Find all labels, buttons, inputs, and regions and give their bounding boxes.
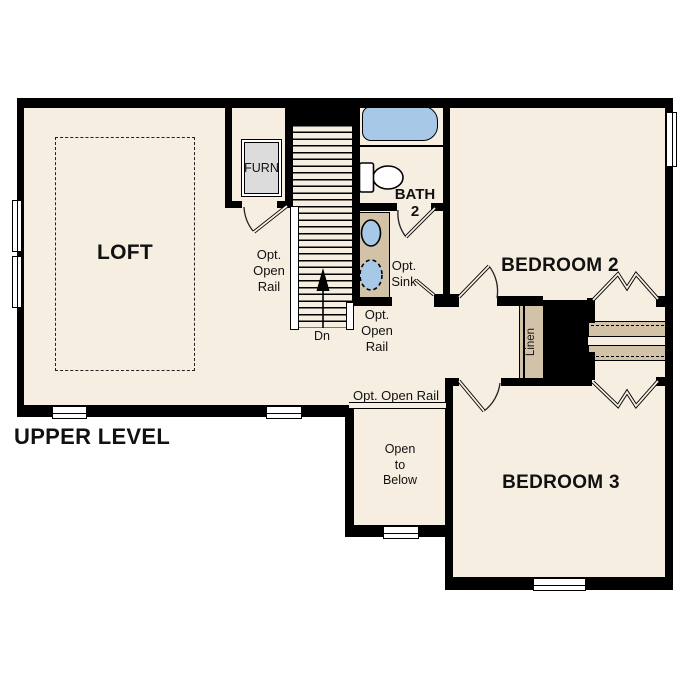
open-rail-stairs-line2: Open (243, 263, 295, 279)
bedroom3-closet-bifold-doors (593, 381, 658, 406)
open-rail-stairs-label: Opt. Open Rail (243, 247, 295, 295)
opt-sink-line2: Sink (384, 274, 424, 290)
bath-label-line2: 2 (389, 203, 441, 220)
bath-label: BATH 2 (389, 186, 441, 220)
bath-label-line1: BATH (389, 186, 441, 203)
open-rail-stairs-line3: Rail (243, 279, 295, 295)
open-rail-stairs-line1: Opt. (243, 247, 295, 263)
open-rail-hall-line3: Rail (351, 339, 403, 355)
furnace-door (244, 206, 287, 232)
open-rail-hall-line1: Opt. (351, 307, 403, 323)
floor-plan: Linen FUR (0, 0, 687, 687)
open-rail-hall-line2: Open (351, 323, 403, 339)
optional-sink-basin (360, 260, 382, 290)
open-to-below-line1: Open (369, 442, 431, 458)
bedroom2-closet-bifold-doors (593, 274, 658, 300)
open-to-below-line2: to (369, 458, 431, 474)
opt-sink-line1: Opt. (384, 258, 424, 274)
plan-symbols-overlay (0, 0, 687, 687)
open-to-below-label: Open to Below (369, 442, 431, 489)
bedroom3-door (459, 381, 500, 411)
bedroom3-label: BEDROOM 3 (481, 472, 641, 494)
open-rail-hall-label: Opt. Open Rail (351, 307, 403, 355)
bedroom2-label: BEDROOM 2 (480, 255, 640, 277)
plan-title: UPPER LEVEL (14, 424, 314, 450)
open-to-below-line3: Below (369, 473, 431, 489)
stairs-down-label: Dn (303, 329, 341, 343)
opt-sink-label: Opt. Sink (384, 258, 424, 290)
loft-label: LOFT (75, 241, 175, 265)
sink-basin (362, 220, 381, 246)
stair-direction-arrow (317, 268, 330, 328)
open-rail-loft-label: Opt. Open Rail (345, 388, 447, 403)
